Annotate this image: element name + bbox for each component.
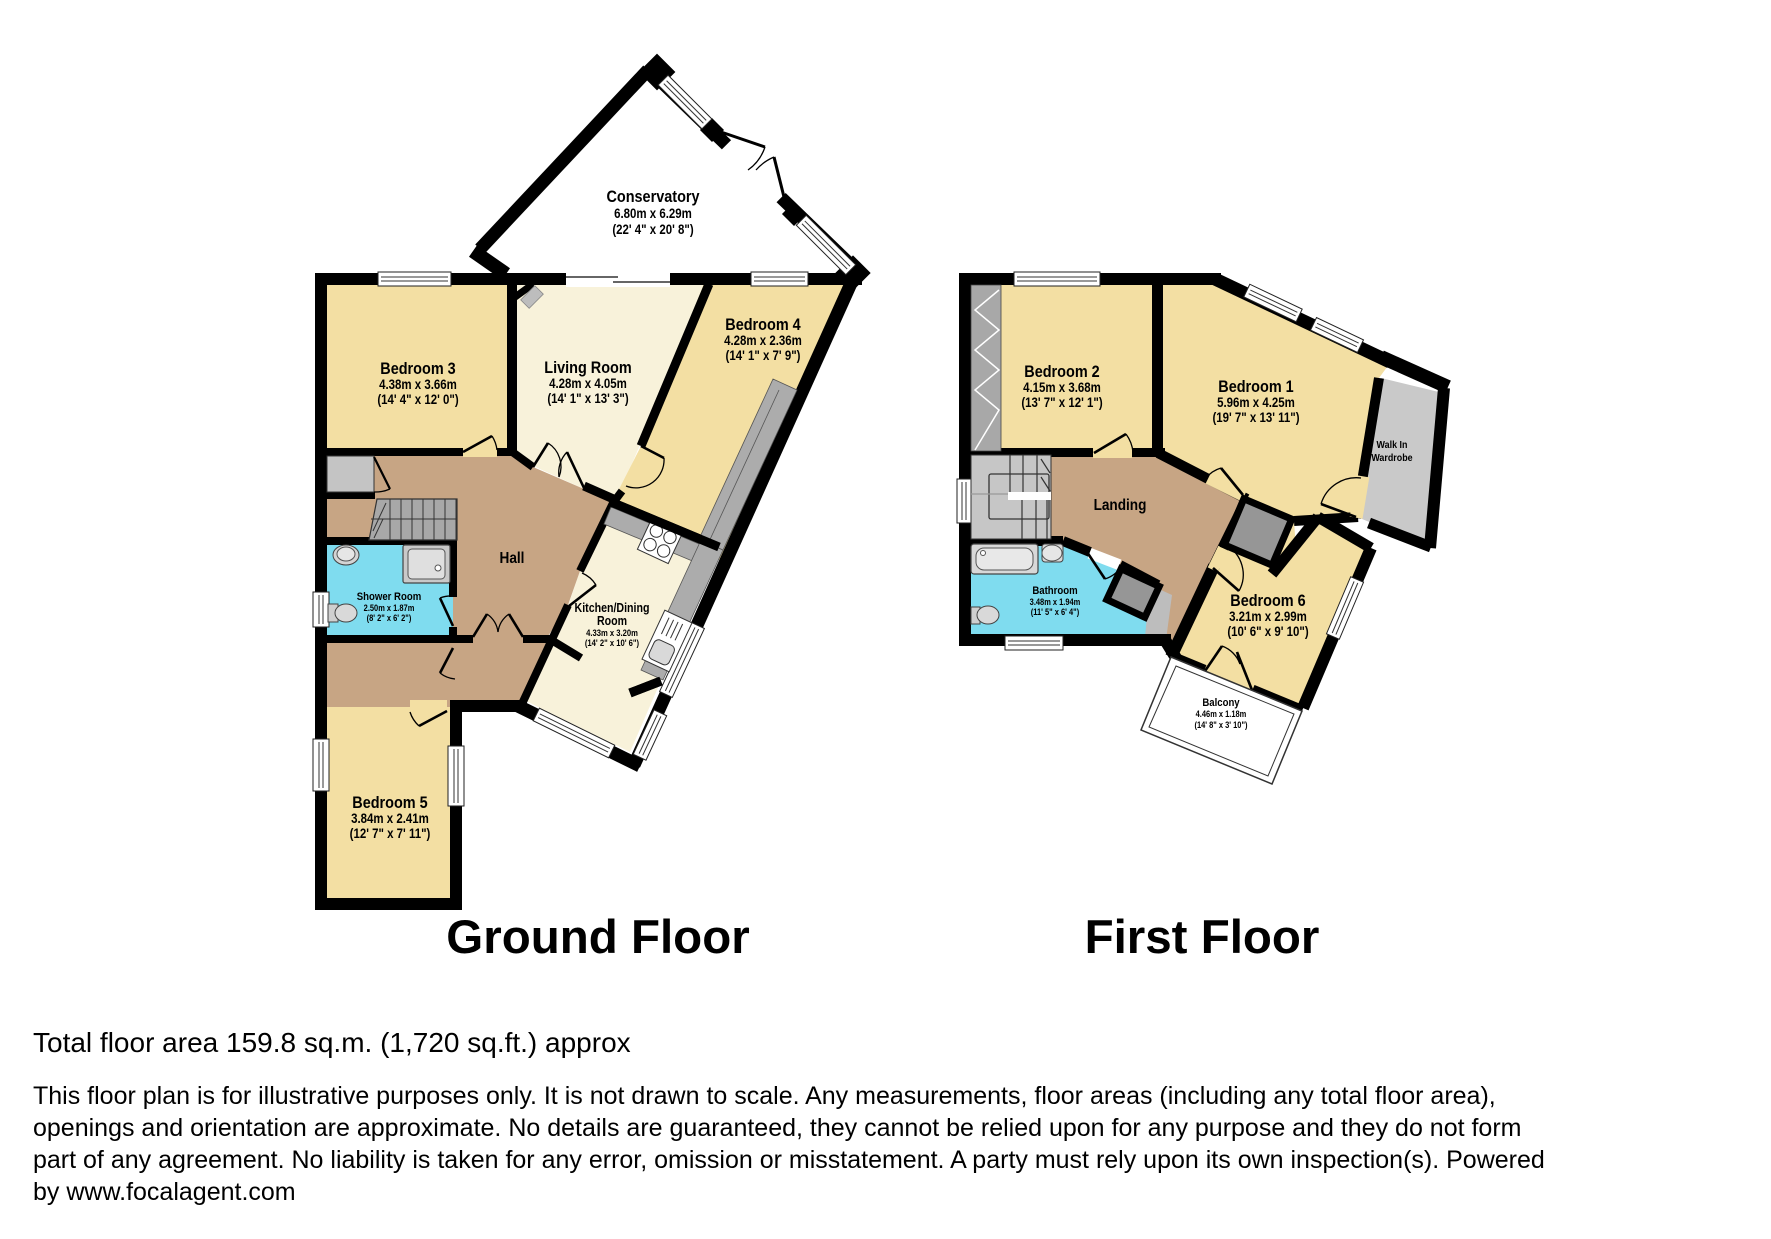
svg-text:Ground Floor: Ground Floor xyxy=(446,911,749,964)
svg-text:(14' 1" x 13' 3"): (14' 1" x 13' 3") xyxy=(547,391,628,406)
svg-text:(19' 7" x 13' 11"): (19' 7" x 13' 11") xyxy=(1212,410,1299,425)
svg-text:3.84m x 2.41m: 3.84m x 2.41m xyxy=(351,811,429,826)
svg-text:openings and orientation are a: openings and orientation are approximate… xyxy=(33,1114,1522,1142)
svg-text:Walk In: Walk In xyxy=(1377,439,1408,451)
svg-text:Bedroom 1: Bedroom 1 xyxy=(1218,378,1294,396)
svg-text:Room: Room xyxy=(597,614,627,628)
svg-text:(14' 2" x 10' 6"): (14' 2" x 10' 6") xyxy=(585,637,639,648)
svg-text:(13' 7" x 12' 1"): (13' 7" x 12' 1") xyxy=(1021,395,1102,410)
svg-text:Bedroom 3: Bedroom 3 xyxy=(380,360,456,378)
svg-text:3.21m x 2.99m: 3.21m x 2.99m xyxy=(1229,609,1307,624)
svg-text:Total floor area 159.8 sq.m. (: Total floor area 159.8 sq.m. (1,720 sq.f… xyxy=(33,1027,631,1058)
svg-text:Hall: Hall xyxy=(500,550,525,567)
svg-text:Landing: Landing xyxy=(1094,497,1147,514)
svg-text:Bedroom 4: Bedroom 4 xyxy=(725,316,801,334)
svg-text:Living Room: Living Room xyxy=(544,359,631,377)
svg-text:(11' 5" x 6' 4"): (11' 5" x 6' 4") xyxy=(1031,607,1080,617)
svg-text:6.80m x 6.29m: 6.80m x 6.29m xyxy=(614,206,692,221)
svg-text:2.50m x 1.87m: 2.50m x 1.87m xyxy=(364,603,415,613)
svg-text:Conservatory: Conservatory xyxy=(606,188,699,206)
svg-text:Bedroom 5: Bedroom 5 xyxy=(352,794,428,812)
svg-text:4.46m x 1.18m: 4.46m x 1.18m xyxy=(1196,709,1247,719)
svg-text:Wardrobe: Wardrobe xyxy=(1371,452,1413,464)
svg-text:Shower Room: Shower Room xyxy=(357,591,421,603)
svg-text:4.28m x 2.36m: 4.28m x 2.36m xyxy=(724,333,802,348)
svg-text:First Floor: First Floor xyxy=(1085,911,1320,964)
svg-text:3.48m x 1.94m: 3.48m x 1.94m xyxy=(1030,597,1081,607)
svg-text:by www.focalagent.com: by www.focalagent.com xyxy=(33,1178,296,1206)
svg-text:4.15m x 3.68m: 4.15m x 3.68m xyxy=(1023,380,1101,395)
svg-text:(8' 2" x 6' 2"): (8' 2" x 6' 2") xyxy=(367,613,412,623)
svg-text:4.28m x 4.05m: 4.28m x 4.05m xyxy=(549,376,627,391)
svg-text:This floor plan is for illustr: This floor plan is for illustrative purp… xyxy=(33,1082,1496,1110)
svg-text:(14' 8" x 3' 10"): (14' 8" x 3' 10") xyxy=(1194,720,1247,730)
svg-text:(14' 1" x 7' 9"): (14' 1" x 7' 9") xyxy=(726,348,801,363)
svg-text:(22' 4" x 20' 8"): (22' 4" x 20' 8") xyxy=(612,222,693,237)
svg-text:Bedroom 2: Bedroom 2 xyxy=(1024,363,1100,381)
svg-text:5.96m x 4.25m: 5.96m x 4.25m xyxy=(1217,395,1295,410)
svg-text:(12' 7" x 7' 11"): (12' 7" x 7' 11") xyxy=(350,826,431,841)
svg-text:4.38m x 3.66m: 4.38m x 3.66m xyxy=(379,377,457,392)
svg-text:Kitchen/Dining: Kitchen/Dining xyxy=(575,601,650,615)
svg-text:(10' 6" x 9' 10"): (10' 6" x 9' 10") xyxy=(1227,624,1308,639)
svg-text:part of any agreement. No liab: part of any agreement. No liability is t… xyxy=(33,1146,1545,1174)
svg-text:(14' 4" x 12' 0"): (14' 4" x 12' 0") xyxy=(377,392,458,407)
svg-text:Bathroom: Bathroom xyxy=(1032,585,1077,597)
svg-text:Balcony: Balcony xyxy=(1202,697,1239,709)
svg-text:Bedroom 6: Bedroom 6 xyxy=(1230,592,1306,610)
